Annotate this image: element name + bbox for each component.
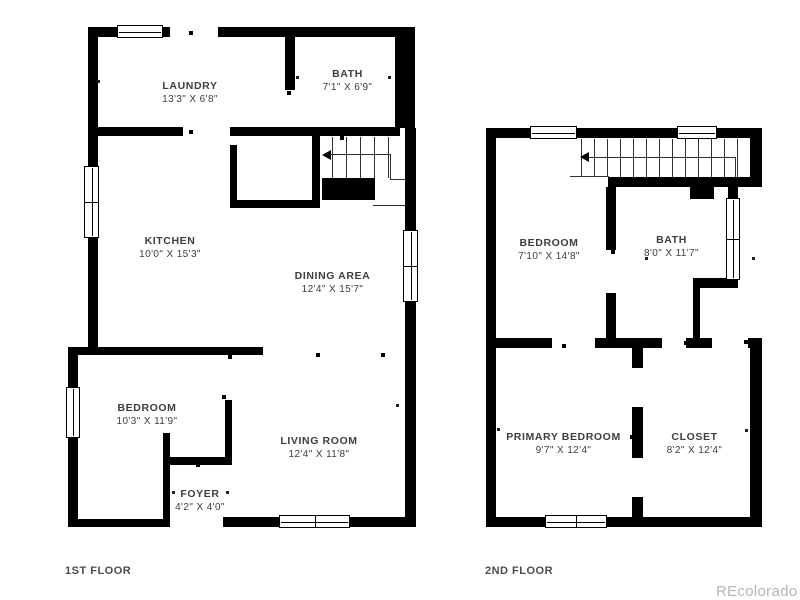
room-name: LIVING ROOM (259, 434, 379, 448)
stair-tread (633, 139, 634, 177)
stair-tread (346, 137, 347, 178)
interior-wall (632, 348, 643, 368)
room-dimensions: 8'0" X 11'7" (620, 247, 723, 261)
exterior-wall (486, 517, 762, 527)
stair-rail (390, 179, 406, 180)
stair-tread (672, 139, 673, 177)
stairs-black-fill (322, 178, 375, 200)
interior-wall (632, 407, 643, 458)
exterior-wall (748, 338, 762, 348)
room-name: BATH (620, 233, 723, 247)
stair-tread (711, 139, 712, 177)
door-opening-tick (340, 136, 344, 140)
room-dimensions: 4'2" X 4'0" (160, 501, 240, 515)
stairs-direction-arrow (580, 152, 589, 162)
exterior-wall (88, 237, 98, 355)
stair-tread (360, 137, 361, 178)
room-name: DINING AREA (270, 269, 395, 283)
window (545, 515, 607, 528)
room-dimensions: 13'3" X 6'8" (130, 93, 250, 107)
exterior-wall (405, 128, 416, 527)
interior-wall (230, 127, 400, 136)
floor-caption-second: 2ND FLOOR (485, 565, 553, 577)
stair-tread (685, 139, 686, 177)
door-opening-tick (287, 91, 291, 95)
window (726, 198, 740, 280)
interior-wall (608, 177, 762, 187)
watermark: REcolorado (716, 583, 797, 600)
interior-wall (230, 145, 237, 208)
room-label-foyer: FOYER 4'2" X 4'0" (160, 487, 240, 515)
stair-rail (735, 157, 736, 177)
interior-wall (230, 200, 320, 208)
room-dimensions: 7'1" X 6'9" (300, 81, 395, 95)
room-label-living-room: LIVING ROOM 12'4" X 11'8" (259, 434, 379, 462)
door-opening-tick (684, 341, 688, 345)
room-label-bedroom-2f: BEDROOM 7'10" X 14'8" (490, 236, 608, 264)
room-label-kitchen: KITCHEN 10'0" X 15'3" (110, 234, 230, 262)
window (279, 515, 350, 528)
window (530, 126, 577, 139)
stair-tread (659, 139, 660, 177)
interior-wall (225, 400, 232, 465)
interior-wall (68, 347, 263, 355)
interior-wall (285, 37, 295, 90)
wall-mark (752, 257, 755, 260)
interior-wall (632, 497, 643, 519)
exterior-wall (728, 178, 738, 200)
stair-tread (646, 139, 647, 177)
door-opening-tick (316, 353, 320, 357)
room-name: PRIMARY BEDROOM (496, 430, 631, 444)
door-opening-tick (744, 340, 748, 344)
room-name: FOYER (160, 487, 240, 501)
interior-wall (496, 338, 552, 348)
door-opening-tick (708, 340, 712, 344)
window (84, 166, 99, 238)
window (403, 230, 418, 302)
room-label-closet: CLOSET 8'2" X 12'4" (646, 430, 743, 458)
wall-mark (296, 76, 299, 79)
room-label-bath-1f: BATH 7'1" X 6'9" (300, 67, 395, 95)
window (117, 25, 163, 38)
door-opening-tick (562, 344, 566, 348)
floor-caption-first: 1ST FLOOR (65, 565, 131, 577)
room-dimensions: 8'2" X 12'4" (646, 444, 743, 458)
room-label-laundry: LAUNDRY 13'3" X 6'8" (130, 79, 250, 107)
exterior-wall (750, 338, 762, 527)
stair-tread (594, 139, 595, 177)
room-label-dining-area: DINING AREA 12'4" X 15'7" (270, 269, 395, 297)
room-name: CLOSET (646, 430, 743, 444)
door-opening-tick (196, 463, 200, 467)
stair-tread (607, 139, 608, 177)
window (677, 126, 717, 139)
door-opening-tick (222, 395, 226, 399)
exterior-wall (218, 27, 395, 37)
stair-tread (620, 139, 621, 177)
room-dimensions: 12'4" X 11'8" (259, 448, 379, 462)
room-dimensions: 10'3" X 11'9" (87, 415, 207, 429)
door-opening-tick (651, 340, 655, 344)
door-opening-tick (381, 353, 385, 357)
stair-tread (724, 139, 725, 177)
room-name: LAUNDRY (130, 79, 250, 93)
room-dimensions: 9'7" X 12'4" (496, 444, 631, 458)
stair-tread (332, 137, 333, 178)
door-opening-tick (228, 355, 232, 359)
exterior-wall (395, 27, 415, 128)
stair-tread (737, 139, 738, 177)
interior-wall (312, 136, 320, 200)
floor-plan-canvas: LAUNDRY 13'3" X 6'8" BATH 7'1" X 6'9" KI… (0, 0, 800, 600)
exterior-wall (486, 128, 496, 527)
room-name: BEDROOM (490, 236, 608, 250)
interior-wall (88, 127, 183, 136)
stair-rail (326, 154, 390, 155)
stair-tread (388, 137, 389, 178)
room-name: BEDROOM (87, 401, 207, 415)
door-opening-tick (611, 250, 615, 254)
room-name: BATH (300, 67, 395, 81)
wall-mark (97, 80, 100, 83)
room-dimensions: 10'0" X 15'3" (110, 248, 230, 262)
stair-tread (698, 139, 699, 177)
exterior-wall (88, 27, 98, 167)
stair-rail (390, 154, 391, 180)
stairs-direction-arrow (322, 150, 331, 160)
room-label-primary-bedroom: PRIMARY BEDROOM 9'7" X 12'4" (496, 430, 631, 458)
chimney-block (690, 182, 714, 199)
door-opening-tick (189, 130, 193, 134)
room-dimensions: 12'4" X 15'7" (270, 283, 395, 297)
stair-rail (373, 205, 406, 206)
stair-tread (374, 137, 375, 178)
exterior-wall (486, 128, 762, 138)
exterior-wall (163, 27, 170, 37)
room-label-bedroom-1f: BEDROOM 10'3" X 11'9" (87, 401, 207, 429)
stair-rail (588, 157, 736, 158)
wall-mark (396, 404, 399, 407)
door-opening-tick (189, 31, 193, 35)
stair-edge (570, 176, 609, 177)
room-label-bath-2f: BATH 8'0" X 11'7" (620, 233, 723, 261)
exterior-wall (68, 519, 167, 527)
room-dimensions: 7'10" X 14'8" (490, 250, 608, 264)
wall-mark (745, 429, 748, 432)
room-name: KITCHEN (110, 234, 230, 248)
window (66, 387, 80, 438)
